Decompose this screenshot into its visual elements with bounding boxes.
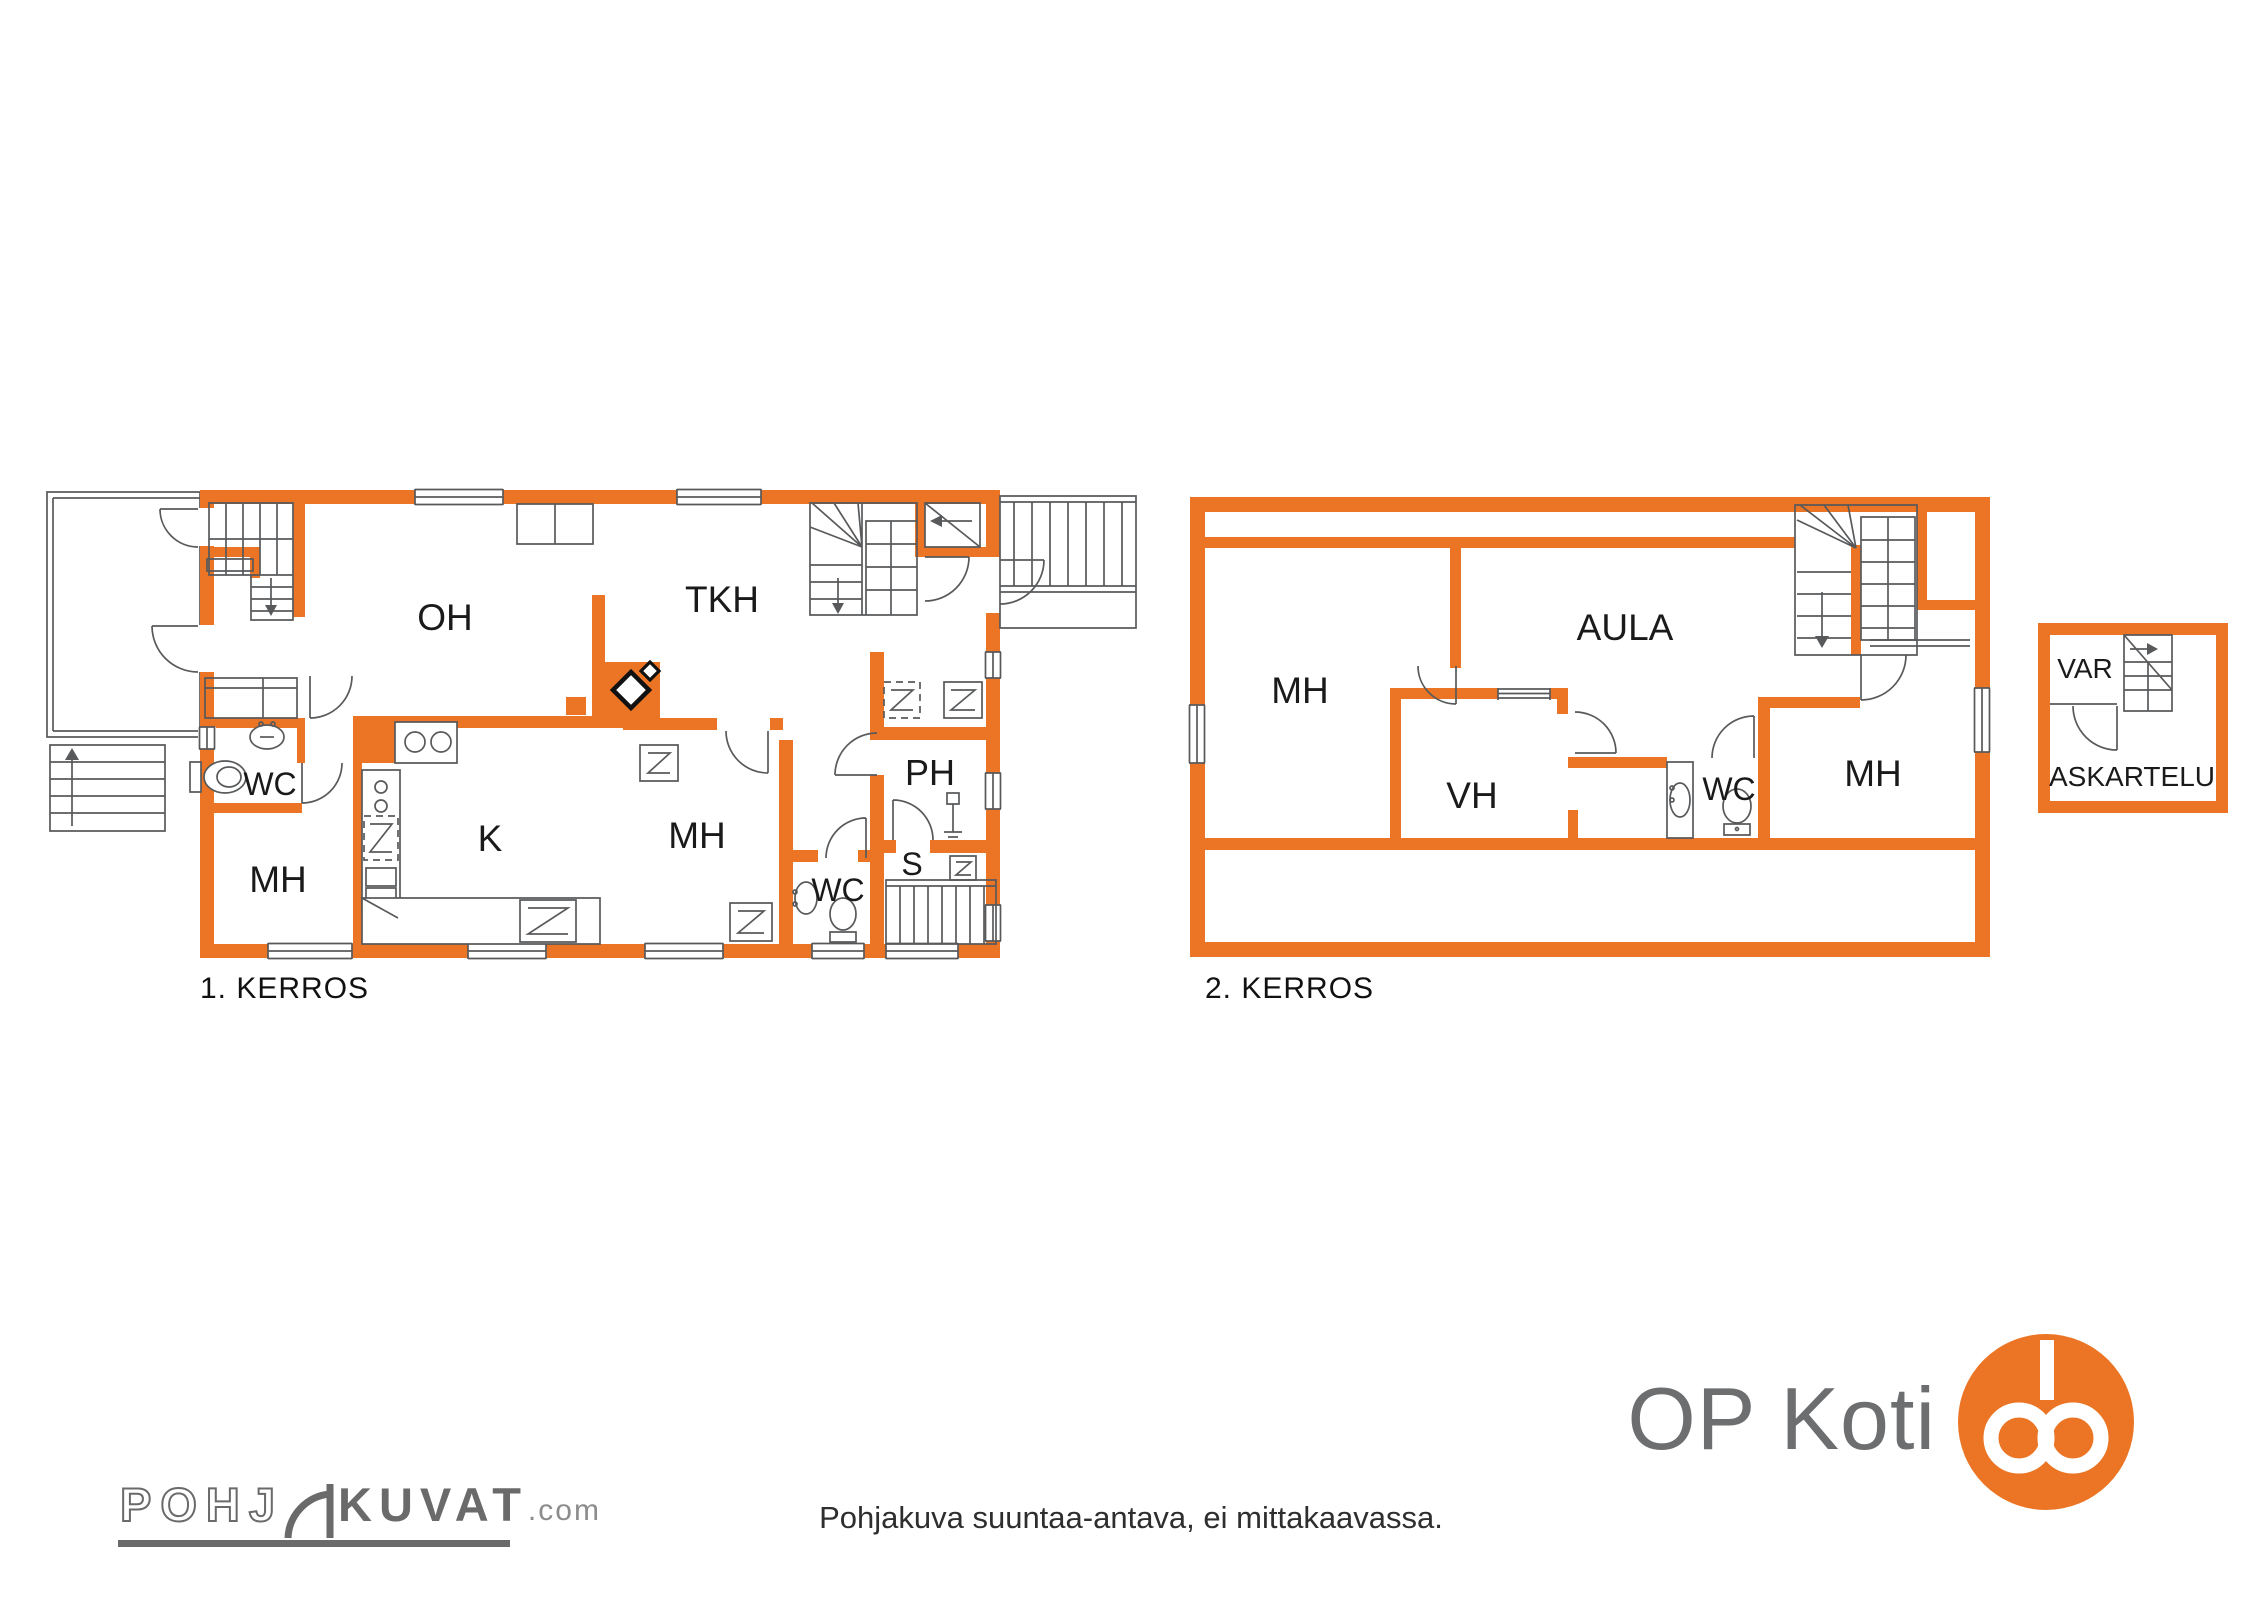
floor-1-caption: 1. KERROS xyxy=(200,972,369,1005)
closet-rod xyxy=(1870,640,1970,646)
room-label-tkh: TKH xyxy=(685,579,759,620)
plans-svg: OH TKH WC MH K MH WC PH S 1. KERROS xyxy=(0,0,2262,1600)
room-label-vh: VH xyxy=(1446,775,1497,816)
deck xyxy=(47,492,200,737)
room-label-mh-left: MH xyxy=(1271,670,1329,711)
room-label-s: S xyxy=(901,846,922,882)
sink xyxy=(1667,762,1693,838)
room-label-wc: WC xyxy=(1702,771,1755,807)
door-arc-icon xyxy=(284,1472,336,1542)
sauna-benches xyxy=(886,880,996,944)
room-label-oh: OH xyxy=(417,597,473,638)
deck-stairs xyxy=(50,745,165,831)
room-label-ph: PH xyxy=(905,752,955,793)
pohjakuvat-logo: POHJ KUVAT .com xyxy=(118,1464,514,1560)
logo-text-com: .com xyxy=(528,1482,601,1540)
walls xyxy=(200,490,1000,958)
outbuilding-plan: VAR ASKARTELU xyxy=(2038,623,2228,813)
room-label-aula: AULA xyxy=(1577,607,1674,648)
room-label-askartelu: ASKARTELU xyxy=(2049,761,2215,792)
stove-burner xyxy=(405,732,425,752)
sauna-stove xyxy=(950,856,976,880)
arrow-left-icon xyxy=(930,515,942,527)
room-label-mh1: MH xyxy=(249,859,307,900)
room-label-mh2: MH xyxy=(668,815,726,856)
arrow-down-icon xyxy=(832,603,844,614)
floor-2-plan: MH AULA VH WC MH 2. KERROS xyxy=(1188,497,1991,1005)
logo-text-kuvat: KUVAT xyxy=(338,1470,528,1540)
arrow-up-icon xyxy=(65,748,79,760)
doors xyxy=(2073,706,2117,750)
washer-dryer xyxy=(884,682,982,718)
toilet xyxy=(190,761,246,793)
logo-text-pohj: POHJ xyxy=(120,1470,284,1540)
room-label-wc2: WC xyxy=(811,872,864,908)
stove-burner xyxy=(431,732,451,752)
room-label-k: K xyxy=(478,818,503,859)
wardrobe-cabinet xyxy=(517,504,593,544)
floor-1-plan: OH TKH WC MH K MH WC PH S 1. KERROS xyxy=(47,488,1136,1005)
op-koti-wordmark: OP Koti xyxy=(1500,1368,1936,1470)
room-label-mh-right: MH xyxy=(1844,753,1902,794)
hall-closet xyxy=(205,678,297,718)
stair-closet xyxy=(925,503,980,547)
upper-stairs xyxy=(810,503,917,615)
op-logo-icon xyxy=(1956,1332,2136,1512)
outbuilding-stairs xyxy=(2124,635,2172,711)
exterior-stairs xyxy=(1000,496,1136,628)
walls xyxy=(1190,497,1990,957)
floor-2-caption: 2. KERROS xyxy=(1205,972,1374,1005)
drying-rack xyxy=(944,793,962,837)
room-label-var: VAR xyxy=(2057,653,2113,684)
room-label-wc1: WC xyxy=(243,766,296,802)
arrow-down-icon xyxy=(1815,636,1829,648)
arrow-right-icon xyxy=(2147,643,2158,655)
floorplan-canvas: OH TKH WC MH K MH WC PH S 1. KERROS xyxy=(0,0,2262,1600)
